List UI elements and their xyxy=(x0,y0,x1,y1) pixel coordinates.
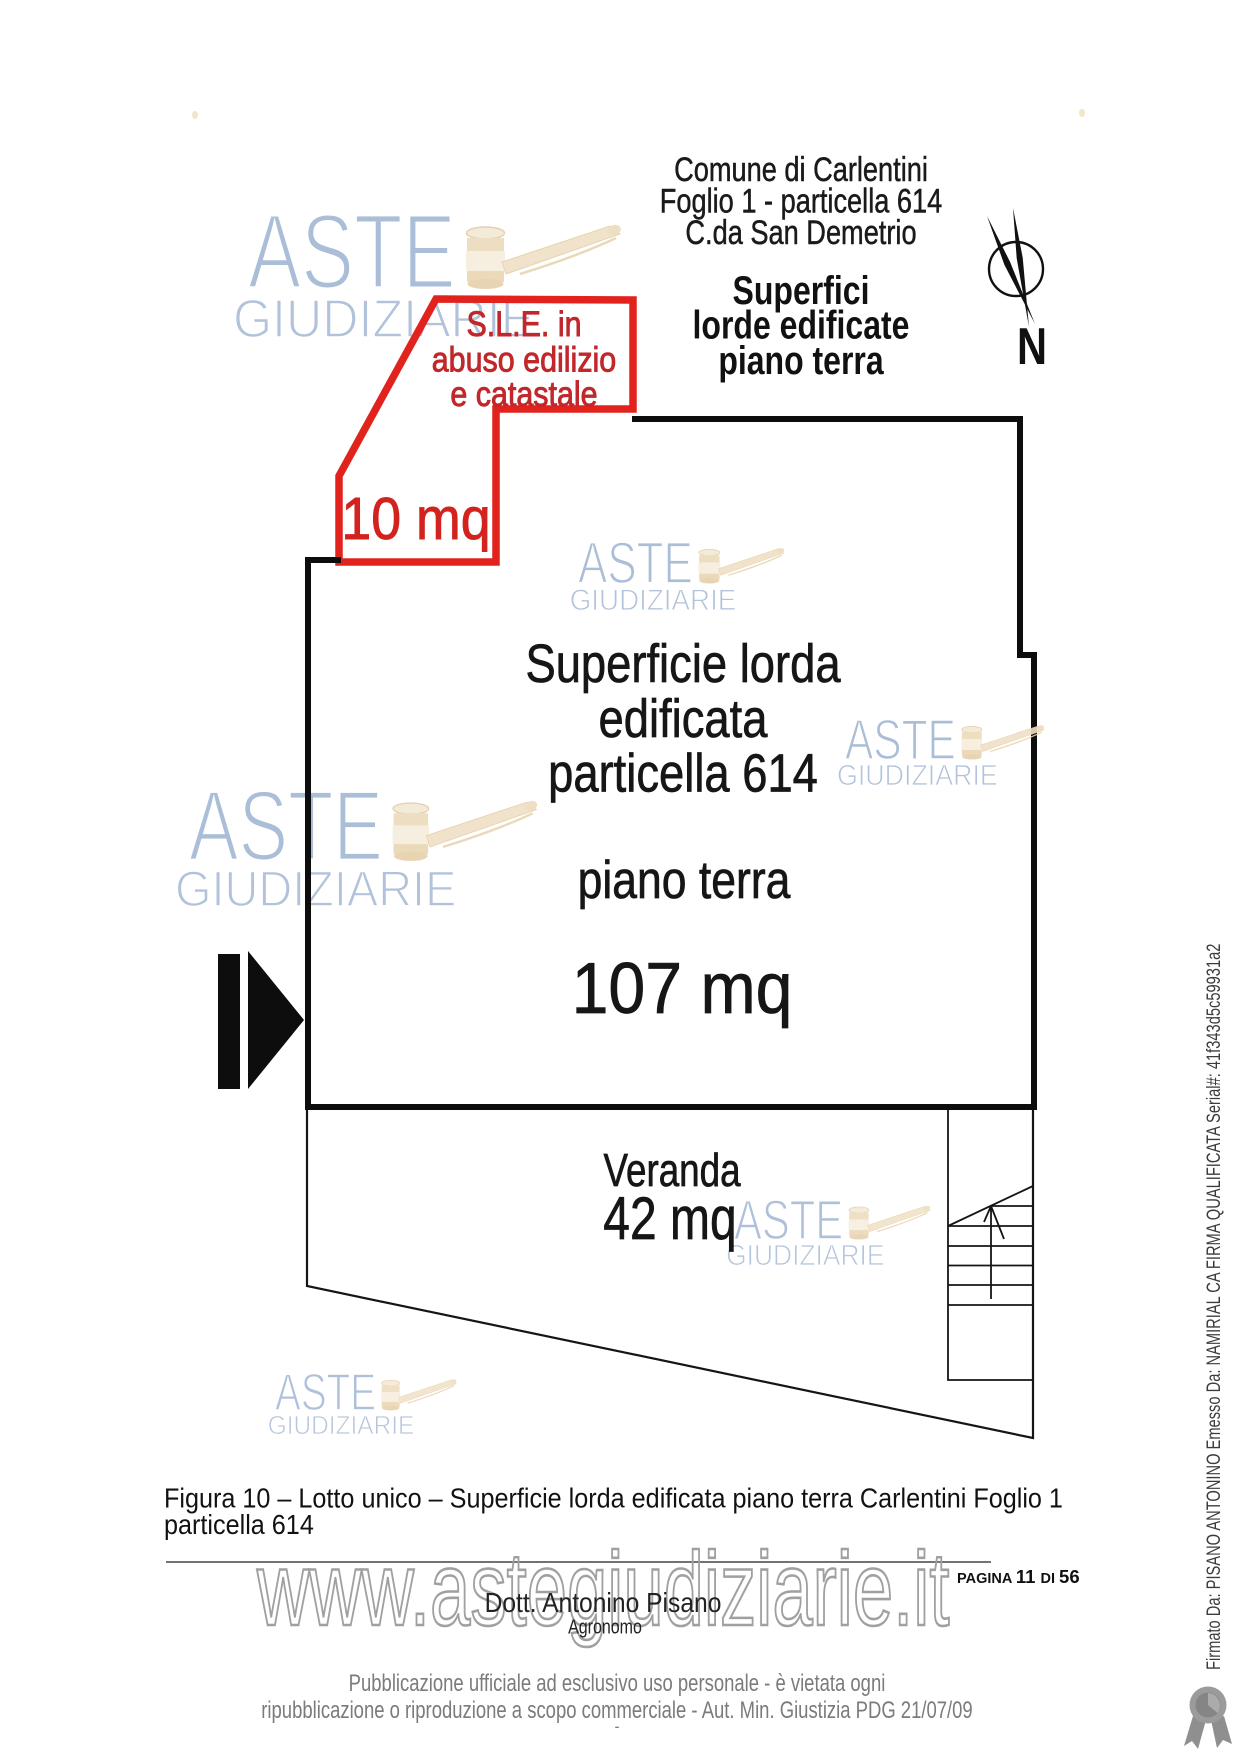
svg-text:-: - xyxy=(615,1717,620,1737)
svg-text:piano terra: piano terra xyxy=(578,851,792,909)
svg-text:e catastale: e catastale xyxy=(450,374,597,413)
svg-text:Firmato Da: PISANO ANTONINO Em: Firmato Da: PISANO ANTONINO Emesso Da: N… xyxy=(1203,944,1224,1670)
svg-text:10 mq: 10 mq xyxy=(341,486,490,552)
svg-text:edificata: edificata xyxy=(599,688,768,749)
svg-text:GIUDIZIARIE: GIUDIZIARIE xyxy=(570,584,737,617)
svg-text:107 mq: 107 mq xyxy=(572,947,793,1028)
svg-text:piano terra: piano terra xyxy=(718,338,884,383)
svg-text:particella 614: particella 614 xyxy=(548,743,818,804)
svg-text:C.da San Demetrio: C.da San Demetrio xyxy=(685,213,916,252)
svg-text:GIUDIZIARIE: GIUDIZIARIE xyxy=(837,759,998,791)
svg-text:PAGINA 11 DI 56: PAGINA 11 DI 56 xyxy=(957,1566,1080,1587)
svg-text:Dott. Antonino Pisano: Dott. Antonino Pisano xyxy=(485,1587,722,1619)
svg-text:GIUDIZIARIE: GIUDIZIARIE xyxy=(268,1411,415,1440)
svg-text:S.L.E. in: S.L.E. in xyxy=(466,304,581,343)
svg-text:GIUDIZIARIE: GIUDIZIARIE xyxy=(175,861,456,917)
svg-text:Agronomo: Agronomo xyxy=(568,1616,642,1638)
svg-text:GIUDIZIARIE: GIUDIZIARIE xyxy=(726,1239,884,1271)
svg-text:42 mq: 42 mq xyxy=(603,1185,736,1252)
svg-text:Pubblicazione ufficiale ad esc: Pubblicazione ufficiale ad esclusivo uso… xyxy=(349,1670,886,1697)
svg-text:Superficie lorda: Superficie lorda xyxy=(525,633,840,694)
svg-text:N: N xyxy=(1017,317,1047,376)
